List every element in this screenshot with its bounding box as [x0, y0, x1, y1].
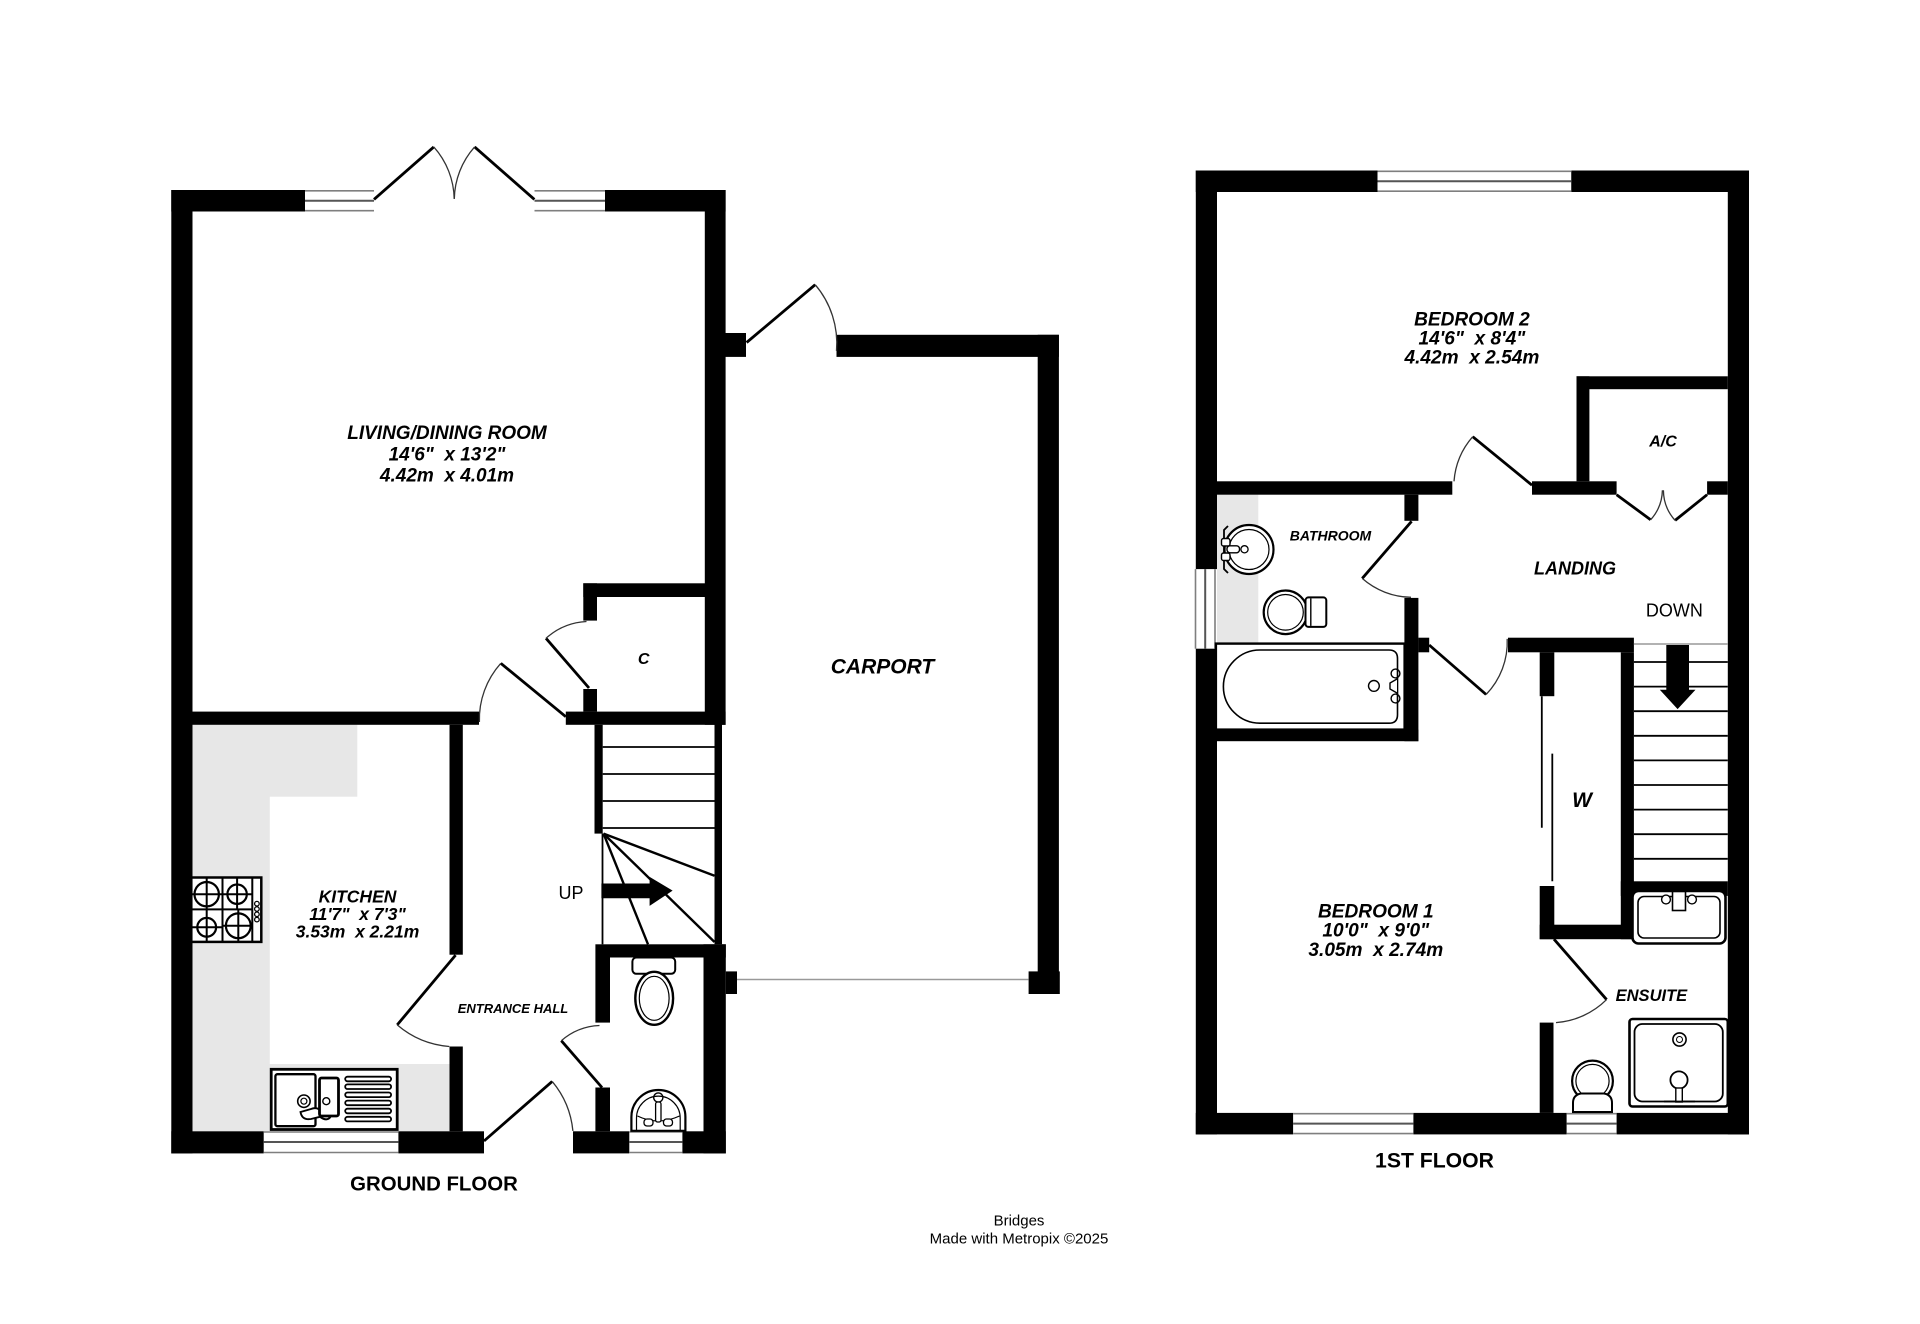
svg-text:1ST FLOOR: 1ST FLOOR: [1375, 1150, 1494, 1173]
svg-text:GROUND FLOOR: GROUND FLOOR: [350, 1174, 518, 1196]
svg-text:4.42m x 4.01m: 4.42m x 4.01m: [379, 465, 514, 486]
svg-text:BATHROOM: BATHROOM: [1290, 528, 1372, 544]
svg-text:A/C: A/C: [1648, 434, 1677, 451]
svg-text:Made with Metropix ©2025: Made with Metropix ©2025: [930, 1231, 1109, 1248]
svg-text:10'0" x 9'0": 10'0" x 9'0": [1322, 921, 1430, 942]
svg-text:ENSUITE: ENSUITE: [1616, 987, 1689, 1005]
svg-text:C: C: [638, 651, 650, 668]
svg-text:ENTRANCE HALL: ENTRANCE HALL: [458, 1001, 569, 1016]
svg-text:14'6" x 13'2": 14'6" x 13'2": [389, 444, 507, 465]
svg-text:BEDROOM 2: BEDROOM 2: [1414, 309, 1530, 330]
svg-text:3.05m x 2.74m: 3.05m x 2.74m: [1308, 940, 1443, 961]
svg-text:LIVING/DINING ROOM: LIVING/DINING ROOM: [347, 423, 548, 444]
svg-text:UP: UP: [558, 883, 583, 903]
svg-text:CARPORT: CARPORT: [831, 655, 937, 678]
svg-text:LANDING: LANDING: [1534, 559, 1616, 579]
svg-text:4.42m x 2.54m: 4.42m x 2.54m: [1403, 347, 1539, 368]
svg-text:BEDROOM 1: BEDROOM 1: [1318, 902, 1434, 923]
svg-text:Bridges: Bridges: [994, 1213, 1045, 1230]
svg-text:3.53m x 2.21m: 3.53m x 2.21m: [296, 922, 420, 942]
svg-text:W: W: [1572, 789, 1594, 812]
svg-text:DOWN: DOWN: [1646, 601, 1703, 621]
